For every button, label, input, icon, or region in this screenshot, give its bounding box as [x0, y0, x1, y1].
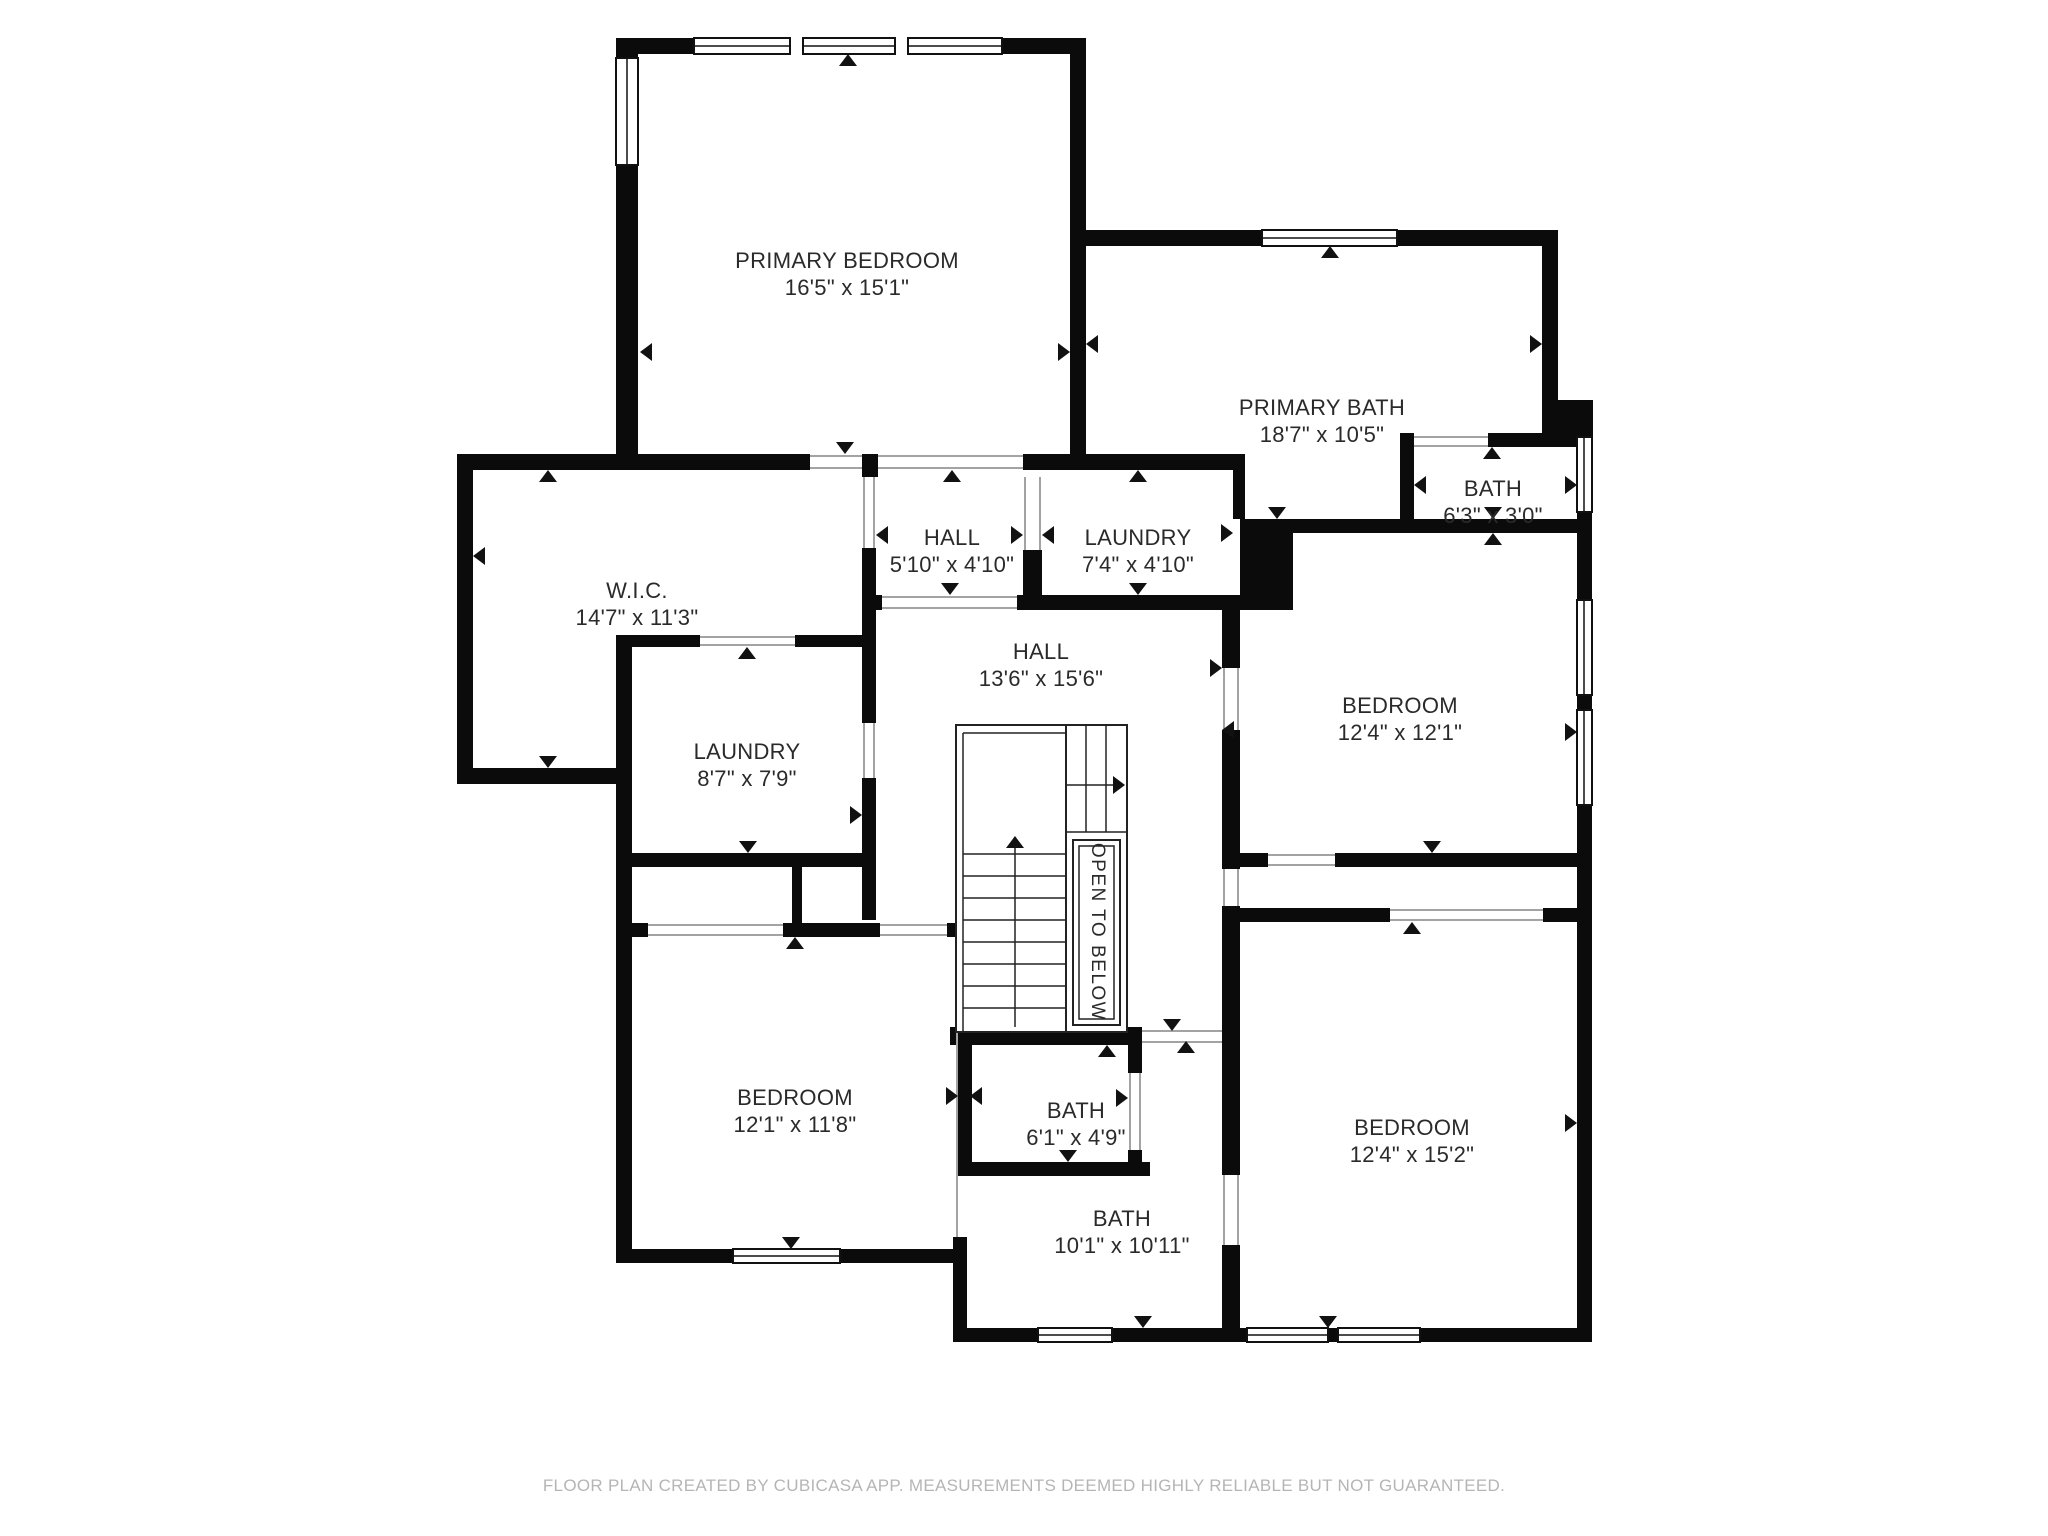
window: [1577, 437, 1592, 512]
room-name: PRIMARY BEDROOM: [735, 247, 959, 274]
room-label-laundry-lower: LAUNDRY 8'7" x 7'9": [694, 738, 801, 792]
room-label-hall-main: HALL 13'6" x 15'6": [979, 638, 1104, 692]
room-label-primary-bath: PRIMARY BATH 18'7" x 10'5": [1239, 394, 1405, 448]
room-label-bedroom-east: BEDROOM 12'4" x 12'1": [1338, 692, 1463, 746]
room-dims: 12'4" x 15'2": [1350, 1141, 1475, 1168]
room-name: LAUNDRY: [1082, 524, 1194, 551]
room-label-bedroom-southwest: BEDROOM 12'1" x 11'8": [734, 1084, 857, 1138]
window: [908, 38, 1002, 54]
room-dims: 14'7" x 11'3": [576, 604, 699, 631]
room-label-bath-small: BATH 6'3" x 3'0": [1443, 475, 1543, 529]
room-name: BATH: [1443, 475, 1543, 502]
room-label-hall-upper: HALL 5'10" x 4'10": [890, 524, 1015, 578]
room-name: BEDROOM: [734, 1084, 857, 1111]
floor-plan-canvas: PRIMARY BEDROOM 16'5" x 15'1" PRIMARY BA…: [0, 0, 2048, 1536]
window: [1262, 230, 1397, 246]
room-name: BEDROOM: [1338, 692, 1463, 719]
window: [694, 38, 790, 54]
room-name: BATH: [1054, 1205, 1189, 1232]
room-label-bath-south: BATH 10'1" x 10'11": [1054, 1205, 1189, 1259]
window: [1338, 1328, 1420, 1342]
footer-disclaimer: FLOOR PLAN CREATED BY CUBICASA APP. MEAS…: [0, 1476, 2048, 1496]
room-dims: 10'1" x 10'11": [1054, 1232, 1189, 1259]
room-dims: 6'1" x 4'9": [1026, 1124, 1126, 1151]
room-dims: 12'4" x 12'1": [1338, 719, 1463, 746]
room-name: W.I.C.: [576, 577, 699, 604]
room-dims: 13'6" x 15'6": [979, 665, 1104, 692]
room-dims: 18'7" x 10'5": [1239, 421, 1405, 448]
window: [1577, 710, 1592, 805]
floor-plan-drawing: [0, 0, 2048, 1536]
room-label-bedroom-southeast: BEDROOM 12'4" x 15'2": [1350, 1114, 1475, 1168]
window: [616, 58, 638, 165]
window: [1577, 600, 1592, 695]
room-name: BEDROOM: [1350, 1114, 1475, 1141]
room-label-wic: W.I.C. 14'7" x 11'3": [576, 577, 699, 631]
room-dims: 12'1" x 11'8": [734, 1111, 857, 1138]
room-dims: 16'5" x 15'1": [735, 274, 959, 301]
room-dims: 8'7" x 7'9": [694, 765, 801, 792]
window: [733, 1249, 840, 1263]
room-name: HALL: [979, 638, 1104, 665]
room-label-bath-center: BATH 6'1" x 4'9": [1026, 1097, 1126, 1151]
room-name: HALL: [890, 524, 1015, 551]
window: [1038, 1328, 1112, 1342]
room-label-primary-bedroom: PRIMARY BEDROOM 16'5" x 15'1": [735, 247, 959, 301]
room-name: PRIMARY BATH: [1239, 394, 1405, 421]
room-dims: 7'4" x 4'10": [1082, 551, 1194, 578]
room-label-laundry-upper: LAUNDRY 7'4" x 4'10": [1082, 524, 1194, 578]
room-dims: 6'3" x 3'0": [1443, 502, 1543, 529]
open-to-below-label: OPEN TO BELOW: [1086, 843, 1108, 1021]
room-dims: 5'10" x 4'10": [890, 551, 1015, 578]
window: [1247, 1328, 1328, 1342]
room-name: BATH: [1026, 1097, 1126, 1124]
window: [803, 38, 895, 54]
room-name: LAUNDRY: [694, 738, 801, 765]
